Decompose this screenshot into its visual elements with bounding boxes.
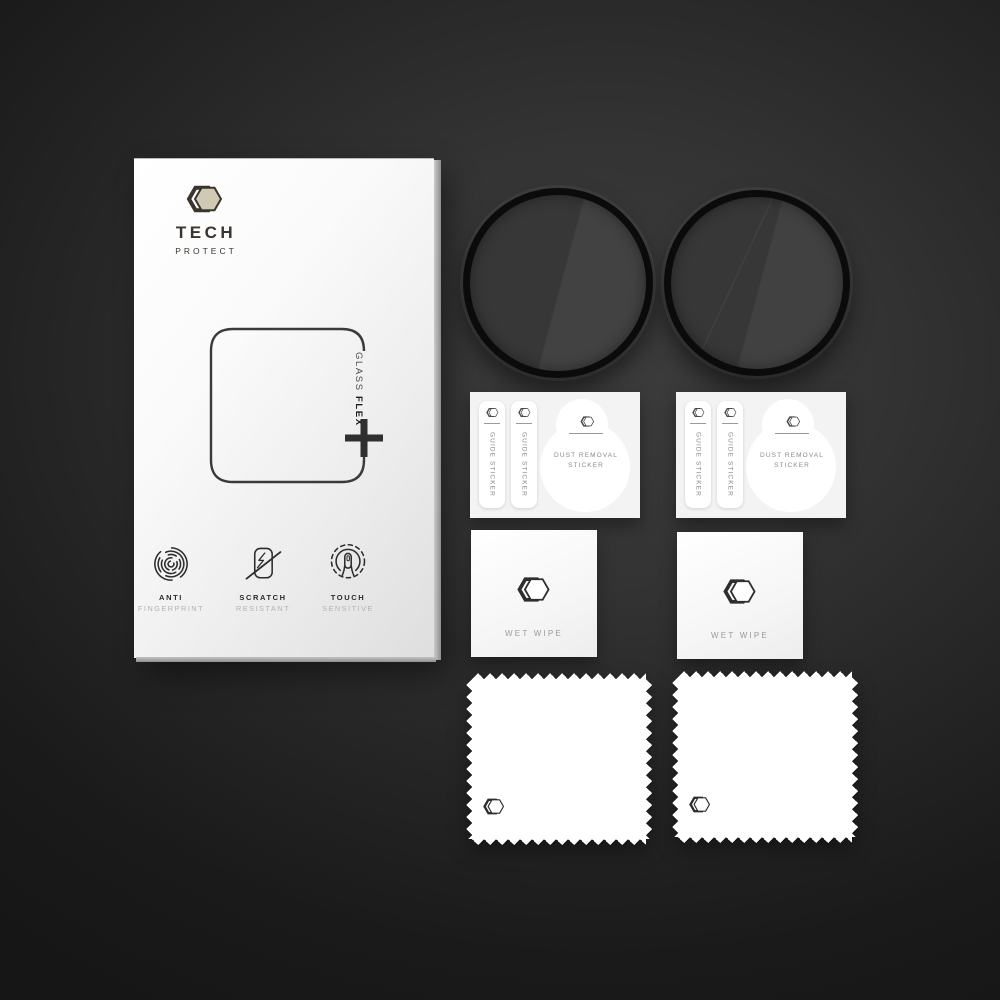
brand-subname: PROTECT (175, 246, 237, 256)
hexagon-logo-icon (183, 180, 227, 218)
hexagon-logo-icon (579, 414, 596, 429)
feature-touch-sensitive: TOUCH SENSITIVE (306, 542, 390, 613)
guide-sticker: GUIDE STICKER (479, 401, 505, 508)
hexagon-logo-icon (691, 406, 706, 419)
sticker-sheet: GUIDE STICKER GUIDE STICKER DUST REMOVAL… (470, 392, 640, 518)
scratch-resistant-icon (241, 542, 285, 586)
microfiber-cloth (672, 671, 858, 843)
feature-anti-fingerprint: ANTI FINGERPRINT (129, 542, 213, 613)
box-right-edge (434, 160, 441, 660)
plus-icon (345, 419, 383, 457)
feature-scratch-resistant: SCRATCH RESISTANT (221, 542, 305, 613)
guide-sticker: GUIDE STICKER (511, 401, 537, 508)
zigzag-edge (678, 837, 852, 843)
box-bottom-edge (136, 657, 436, 662)
divider-line (722, 423, 738, 424)
dust-removal-label: DUST REMOVAL (554, 452, 618, 459)
product-name-glass: GLASS (353, 352, 364, 392)
divider-line (569, 433, 603, 434)
divider-line (775, 433, 809, 434)
hexagon-logo-icon (785, 414, 802, 429)
dust-removal-sticker: DUST REMOVAL STICKER (536, 392, 636, 514)
wet-wipe-packet: WET WIPE (677, 532, 803, 659)
watch-shape-outline (209, 327, 366, 484)
dust-removal-label: STICKER (774, 462, 810, 469)
feature-subtitle: RESISTANT (236, 604, 290, 613)
retail-box: TECH PROTECT GLASSFLEX (134, 158, 441, 662)
dust-removal-sticker: DUST REMOVAL STICKER (742, 392, 842, 514)
hexagon-logo-icon (481, 795, 507, 818)
sticker-sheet: GUIDE STICKER GUIDE STICKER DUST REMOVAL… (676, 392, 846, 518)
hexagon-logo-icon (485, 406, 500, 419)
dust-removal-label: STICKER (568, 462, 604, 469)
divider-line (484, 423, 500, 424)
guide-sticker: GUIDE STICKER (717, 401, 743, 508)
wet-wipe-label: WET WIPE (711, 631, 769, 640)
fingerprint-icon (149, 542, 193, 586)
microfiber-cloth (466, 673, 652, 845)
guide-sticker-label: GUIDE STICKER (727, 432, 734, 497)
zigzag-edge (646, 679, 652, 839)
zigzag-edge (472, 839, 646, 845)
wet-wipe-label: WET WIPE (505, 629, 563, 638)
feature-title: TOUCH (331, 593, 366, 602)
brand-logo-panel: TECH PROTECT (161, 167, 248, 267)
hexagon-logo-icon (723, 406, 738, 419)
brand-name: TECH (176, 223, 236, 243)
hexagon-logo-icon (687, 793, 713, 816)
dust-removal-label: DUST REMOVAL (760, 452, 824, 459)
hexagon-logo-icon (517, 406, 532, 419)
guide-sticker-label: GUIDE STICKER (695, 432, 702, 497)
guide-sticker-label: GUIDE STICKER (521, 432, 528, 497)
divider-line (690, 423, 706, 424)
product-photo-scene: TECH PROTECT GLASSFLEX (0, 0, 1000, 1000)
feature-subtitle: SENSITIVE (322, 604, 374, 613)
divider-line (516, 423, 532, 424)
feature-title: SCRATCH (239, 593, 286, 602)
feature-subtitle: FINGERPRINT (138, 604, 204, 613)
glass-protector-disc (463, 188, 653, 378)
box-front-face: TECH PROTECT GLASSFLEX (134, 158, 434, 658)
feature-title: ANTI (159, 593, 183, 602)
wet-wipe-packet: WET WIPE (471, 530, 597, 657)
glass-protector-disc (664, 190, 850, 376)
hexagon-logo-icon (514, 572, 554, 607)
product-name-vertical: GLASSFLEX (350, 349, 366, 429)
hexagon-logo-icon (720, 574, 760, 609)
guide-sticker-label: GUIDE STICKER (489, 432, 496, 497)
guide-sticker: GUIDE STICKER (685, 401, 711, 508)
touch-sensitive-icon (326, 542, 370, 586)
zigzag-edge (852, 677, 858, 837)
